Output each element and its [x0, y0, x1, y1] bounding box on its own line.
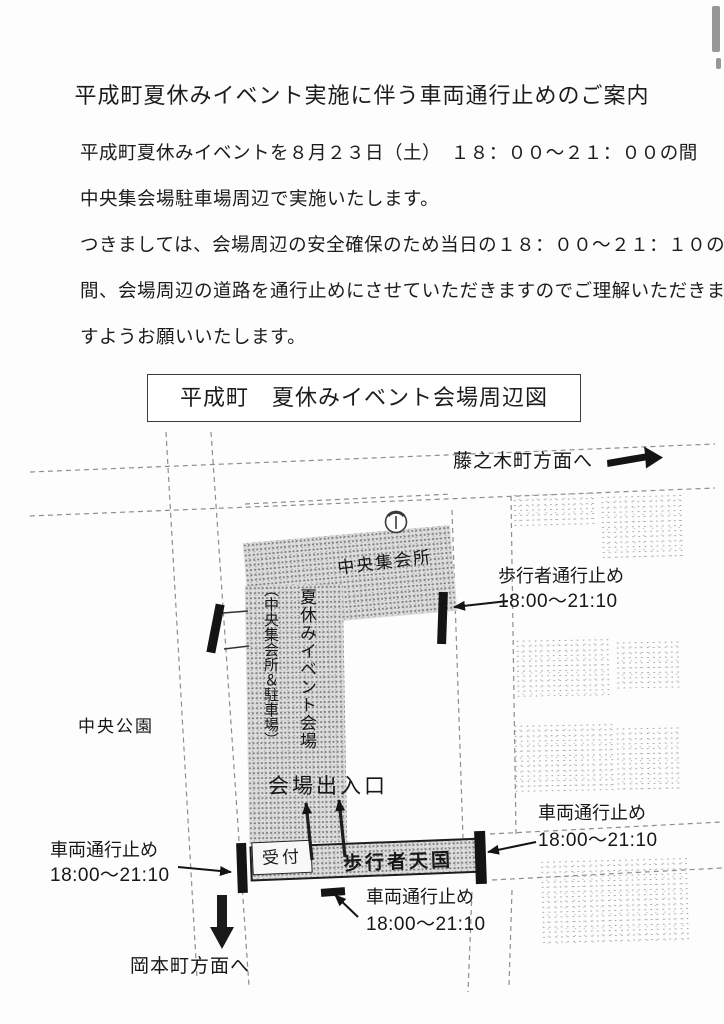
vehicle-closure-text: 車両通行止め: [366, 884, 486, 911]
body-line: つきましては、会場周辺の安全確保のため当日の１８：００～２１：１０の: [80, 223, 665, 269]
vehicle-closure-text: 車両通行止め: [538, 800, 658, 827]
building-block: [512, 722, 613, 792]
scanned-notice-page: 平成町夏休みイベント実施に伴う車両通行止めのご案内 平成町夏休みイベントを８月２…: [0, 0, 724, 1024]
pedestrian-closure-text: 歩行者通行止め: [498, 563, 624, 589]
map-title-box: 平成町 夏休みイベント会場周辺図: [147, 374, 581, 422]
vehicle-closure-west-label: 車両通行止め 18:00～21:10: [50, 837, 170, 889]
vehicle-closure-east-arrow-icon: [488, 842, 536, 852]
closure-bar-south-small: [321, 887, 345, 897]
building-block: [515, 637, 611, 697]
reception-box: 受付: [251, 840, 312, 876]
closure-bar-mall-east: [474, 831, 487, 884]
body-line: 平成町夏休みイベントを８月２３日（土） １８：００～２１：００の間: [80, 131, 665, 177]
vehicle-closure-west-arrow-icon: [178, 867, 231, 872]
closure-time: 18:00～21:10: [50, 863, 170, 889]
event-venue-vertical-label: 夏休みイベント会場: [294, 588, 319, 758]
event-venue-note-vertical-label: （中央集会所＆駐車場）: [260, 582, 281, 772]
vehicle-closure-text: 車両通行止め: [50, 837, 170, 863]
building-block: [615, 639, 684, 688]
body-line: すようお願いいたします。: [80, 315, 665, 361]
closure-bar-east: [437, 592, 448, 644]
closure-time: 18:00～21:10: [538, 827, 658, 854]
body-line: 間、会場周辺の道路を通行止めにさせていただきますのでご理解いただきま: [80, 269, 665, 315]
closure-time: 18:00～21:10: [498, 589, 624, 615]
to-okamotocho-arrow-icon: [210, 895, 234, 949]
central-park-label: 中央公園: [78, 712, 154, 737]
closure-bar-west-road: [206, 604, 224, 654]
building-block: [599, 493, 685, 561]
building-block: [614, 725, 680, 790]
pedestrian-mall-label: 歩行者天国: [343, 845, 454, 876]
building-block: [539, 856, 689, 944]
venue-entrance-label: 会場出入口: [268, 770, 388, 800]
body-line: 中央集会場駐車場周辺で実施いたします。: [80, 177, 665, 223]
closure-time: 18:00～21:10: [366, 911, 486, 938]
scan-smudge: [716, 58, 721, 69]
closure-bar-mall-west: [236, 843, 248, 893]
notice-title: 平成町夏休みイベント実施に伴う車両通行止めのご案内: [0, 78, 724, 110]
building-block: [512, 491, 599, 527]
pedestrian-closure-label: 歩行者通行止め 18:00～21:10: [498, 563, 624, 615]
to-fujinokicho-label: 藤之木町方面へ: [453, 446, 593, 473]
vehicle-closure-south-label: 車両通行止め 18:00～21:10: [366, 884, 486, 938]
to-okamotocho-label: 岡本町方面へ: [130, 951, 250, 978]
vehicle-closure-east-label: 車両通行止め 18:00～21:10: [538, 800, 658, 854]
scan-smudge: [712, 6, 720, 52]
notice-body: 平成町夏休みイベントを８月２３日（土） １８：００～２１：００の間 中央集会場駐…: [80, 131, 665, 361]
to-fujinokicho-arrow-icon: [607, 447, 663, 469]
vehicle-closure-south-arrow-icon: [335, 895, 358, 917]
